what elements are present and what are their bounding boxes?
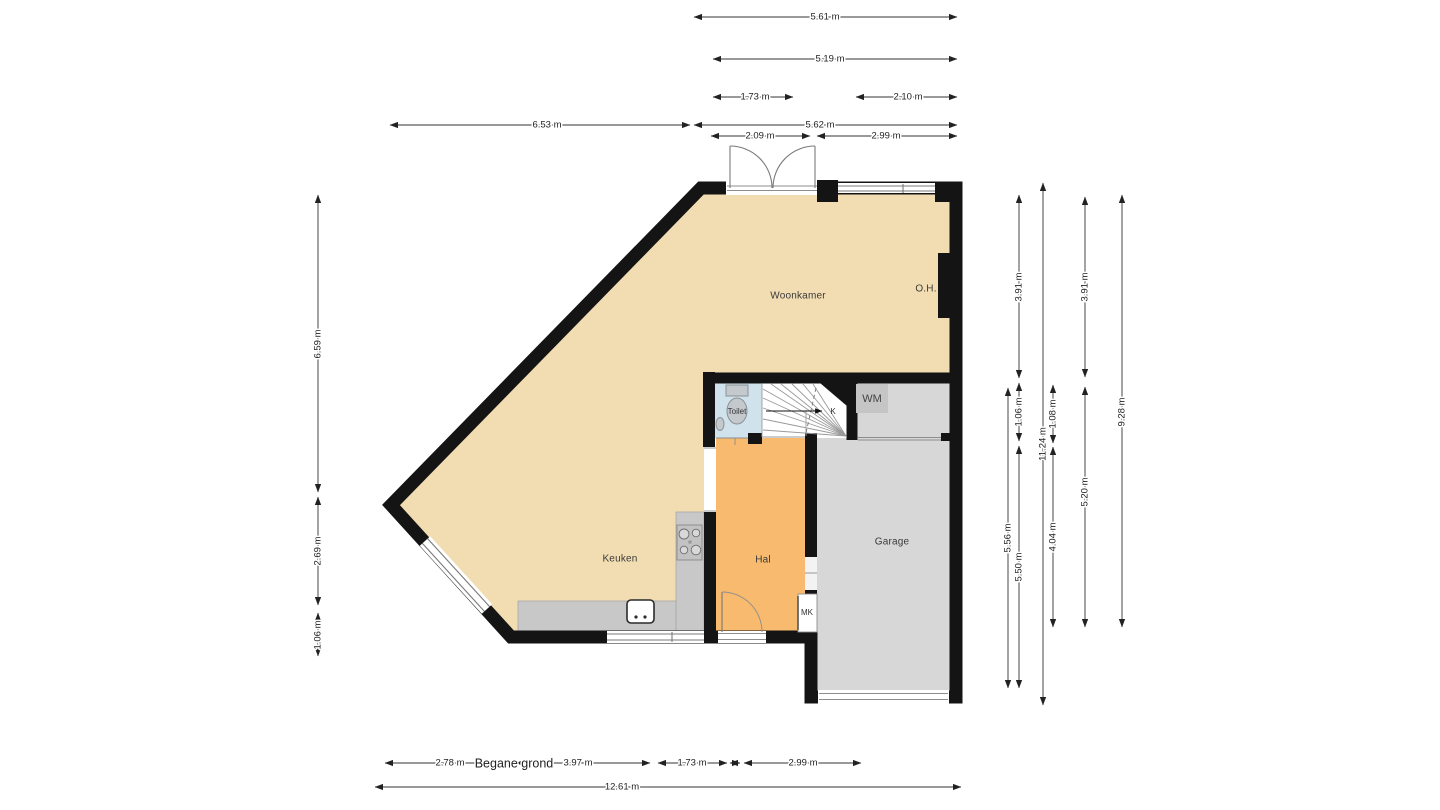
room-hall-floor [716, 438, 805, 634]
garage-door [818, 690, 949, 704]
label-keuken: Keuken [602, 554, 637, 565]
label-washer: WM [862, 393, 882, 405]
dimension-label: 3.97 m [563, 758, 592, 769]
dimension-label: 11.24 m [1038, 427, 1049, 461]
cooktop [677, 525, 702, 560]
dimensions-top: 5.61 m 5.19 m 1.73 m 2.10 m 6.53 m 5.62 … [390, 12, 957, 142]
dimensions-bottom: 2.78 m 3.97 m 1.73 m 2.99 m 12.61 m [375, 758, 961, 793]
kitchen-sink [627, 600, 654, 623]
dimension-label: 1.73 m [740, 92, 769, 103]
dimension-label: 4.04 m [1048, 522, 1059, 551]
dimension-label: 5.61 m [810, 12, 839, 23]
dimension-label: 5.20 m [1080, 477, 1091, 506]
kitchen-hall-opening [704, 447, 716, 512]
dimension-label: 3.91 m [1080, 272, 1091, 301]
dimension-label: 12.61 m [605, 782, 639, 793]
dimension-label: 1.06 m [1014, 397, 1025, 426]
floorplan-drawing: Woonkamer O.H. Toilet K WM Keuken Hal Ga… [0, 0, 1440, 810]
dimension-label: 2.10 m [893, 92, 922, 103]
dimension-label: 5.50 m [1014, 552, 1025, 581]
hall-garage-opening [805, 557, 817, 590]
dimension-label: 9.28 m [1117, 397, 1128, 426]
dimension-label: 1.08 m [1048, 399, 1059, 428]
label-woonkamer: Woonkamer [770, 291, 826, 302]
french-door [726, 146, 817, 195]
dimension-label: 5.56 m [1003, 523, 1014, 552]
dimension-label: 3.91 m [1014, 272, 1025, 301]
label-fireplace: O.H. [915, 284, 936, 295]
dimension-label: 2.99 m [871, 131, 900, 142]
dimensions-left: 6.59 m 2.69 m 1.06 m [313, 195, 324, 656]
floorplan-page: Woonkamer O.H. Toilet K WM Keuken Hal Ga… [0, 0, 1440, 810]
label-stairs: K [830, 407, 836, 416]
dimension-label: 2.69 m [313, 536, 324, 565]
dimension-label: 2.09 m [745, 131, 774, 142]
window-kitchen [607, 631, 704, 643]
dimension-label: 1.73 m [677, 758, 706, 769]
dimension-label: 6.53 m [532, 120, 561, 131]
dimension-label: 1.06 m [313, 620, 324, 649]
fireplace-block [938, 253, 957, 318]
dimension-label: 2.99 m [788, 758, 817, 769]
label-toilet: Toilet [728, 407, 747, 416]
dimensions-right: 3.91 m 1.06 m 5.50 m 5.56 m 11.24 m 1.08… [1003, 183, 1128, 705]
label-hal: Hal [755, 555, 771, 566]
plan-title: Begane grond [475, 756, 554, 770]
dimension-label: 5.19 m [815, 54, 844, 65]
dimension-label: 2.78 m [435, 758, 464, 769]
dimension-label: 5.62 m [805, 120, 834, 131]
label-garage: Garage [875, 537, 910, 548]
label-meter-closet: MK [801, 608, 814, 617]
window-top [838, 183, 935, 193]
dimension-label: 6.59 m [313, 329, 324, 358]
